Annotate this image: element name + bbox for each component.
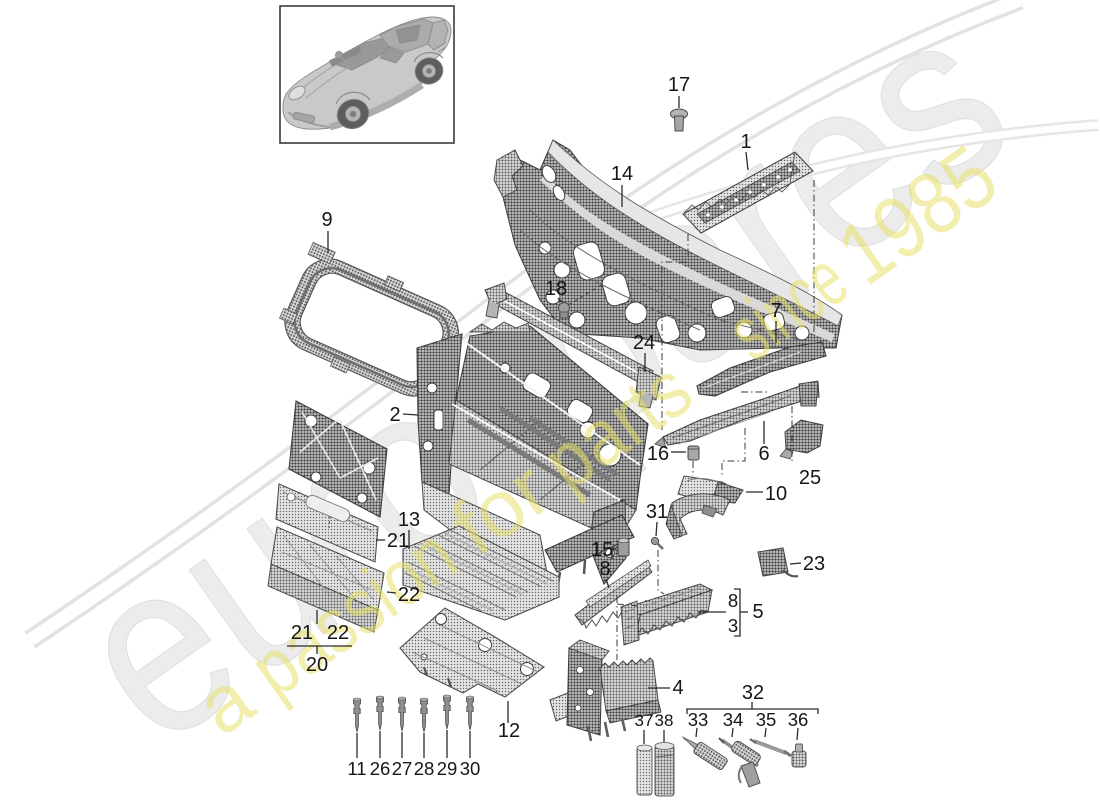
svg-text:33: 33 [688,709,709,730]
svg-text:17: 17 [668,74,690,96]
svg-text:21: 21 [291,622,313,644]
svg-text:22: 22 [398,584,420,606]
svg-text:24: 24 [633,332,655,354]
svg-text:9: 9 [321,209,332,231]
svg-text:2: 2 [389,404,400,426]
svg-text:37: 37 [635,711,654,730]
svg-text:1: 1 [740,131,751,153]
svg-text:20: 20 [306,654,328,676]
svg-text:35: 35 [756,709,777,730]
svg-text:29: 29 [437,758,458,779]
svg-text:23: 23 [803,553,825,575]
svg-text:27: 27 [392,758,413,779]
svg-text:5: 5 [752,601,763,623]
svg-text:7: 7 [770,300,781,322]
svg-text:21: 21 [387,530,409,552]
svg-text:31: 31 [646,501,668,523]
svg-text:12: 12 [498,720,520,742]
svg-text:10: 10 [765,483,787,505]
svg-text:38: 38 [655,711,674,730]
svg-text:32: 32 [742,682,764,704]
svg-text:30: 30 [460,758,481,779]
svg-text:28: 28 [414,758,435,779]
svg-text:8: 8 [728,590,738,611]
svg-text:18: 18 [545,278,567,300]
svg-text:8: 8 [599,558,610,580]
svg-text:13: 13 [398,509,420,531]
svg-text:3: 3 [728,615,738,636]
svg-text:6: 6 [758,443,769,465]
svg-text:26: 26 [370,758,391,779]
svg-text:11: 11 [347,758,366,779]
svg-text:22: 22 [327,622,349,644]
svg-text:16: 16 [647,443,669,465]
svg-text:34: 34 [723,709,744,730]
svg-text:36: 36 [788,709,809,730]
svg-text:4: 4 [672,677,683,699]
svg-text:14: 14 [611,163,633,185]
svg-text:25: 25 [799,467,821,489]
